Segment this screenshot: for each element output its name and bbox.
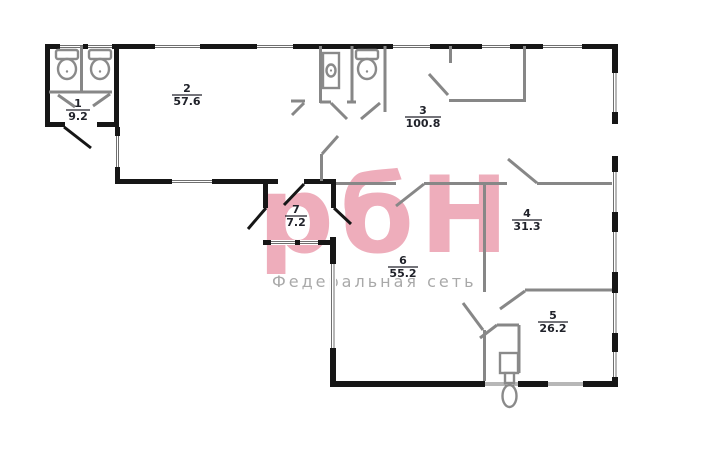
door-leaf [429, 74, 448, 95]
room-label-3: 3 100.8 [405, 104, 441, 130]
floor-plan-drawing: 1 9.2 2 57.6 3 100.8 4 31.3 5 [0, 0, 728, 465]
room-number: 4 [523, 207, 531, 220]
room-labels: 1 9.2 2 57.6 3 100.8 4 31.3 5 [66, 82, 568, 335]
window [612, 352, 618, 377]
doors-exterior [64, 127, 351, 229]
washbasin-icon [500, 353, 518, 407]
room-number: 5 [549, 309, 557, 322]
room-area: 9.2 [68, 110, 88, 123]
room-label-6: 6 55.2 [388, 254, 418, 280]
door-opening [278, 178, 304, 185]
wall-segment [45, 122, 65, 127]
room-number: 1 [74, 97, 82, 110]
window [612, 293, 618, 333]
room-number: 2 [183, 82, 191, 95]
window [543, 44, 582, 49]
door-opening [611, 124, 619, 156]
windows [60, 44, 619, 387]
window [330, 264, 336, 348]
wall-segment [263, 184, 268, 208]
window [257, 44, 293, 49]
door-leaf [248, 208, 266, 229]
room-number: 6 [399, 254, 407, 267]
room-area: 57.6 [173, 95, 200, 108]
room-area: 7.2 [286, 216, 306, 229]
room-area: 26.2 [539, 322, 566, 335]
door-leaf [292, 103, 304, 115]
floor-plan: рбН Федеральная сеть [0, 0, 728, 465]
room-area: 55.2 [389, 267, 416, 280]
wall-segment [97, 122, 119, 127]
door-leaf [396, 184, 424, 206]
room-area: 31.3 [513, 220, 540, 233]
window [548, 381, 583, 387]
window [155, 44, 200, 49]
window [60, 44, 83, 49]
door-leaf [361, 103, 380, 119]
window [300, 240, 318, 245]
window [482, 44, 510, 49]
door-leaf [93, 94, 110, 106]
shower-tray-icon [323, 53, 339, 88]
door-leaf [284, 184, 304, 205]
window [271, 240, 295, 245]
door-leaf [500, 291, 525, 309]
door-leaf [463, 303, 483, 330]
door-leaf [58, 95, 75, 107]
window [612, 172, 618, 212]
room-label-5: 5 26.2 [538, 309, 568, 335]
wall-segment [114, 44, 119, 127]
room-label-4: 4 31.3 [512, 207, 542, 233]
window [393, 44, 430, 49]
room-label-7: 7 7.2 [285, 203, 307, 229]
room-number: 7 [292, 203, 300, 216]
door-leaf [331, 103, 347, 119]
door-leaf [64, 127, 91, 148]
room-label-2: 2 57.6 [172, 82, 202, 108]
door-leaf [508, 159, 537, 183]
door-leaf [322, 136, 338, 154]
wall-segment [45, 44, 618, 49]
room-label-1: 1 9.2 [66, 97, 90, 123]
wall-segment [45, 44, 50, 127]
window [88, 44, 112, 49]
window [612, 73, 618, 112]
window [115, 136, 120, 167]
window [612, 232, 618, 272]
room-area: 100.8 [406, 117, 441, 130]
door-leaf [334, 208, 351, 224]
wall-segment [331, 184, 336, 208]
room-number: 3 [419, 104, 427, 117]
toilet-icon [89, 50, 111, 79]
toilet-icon [356, 50, 378, 79]
window [172, 179, 212, 184]
toilet-icon [56, 50, 78, 79]
